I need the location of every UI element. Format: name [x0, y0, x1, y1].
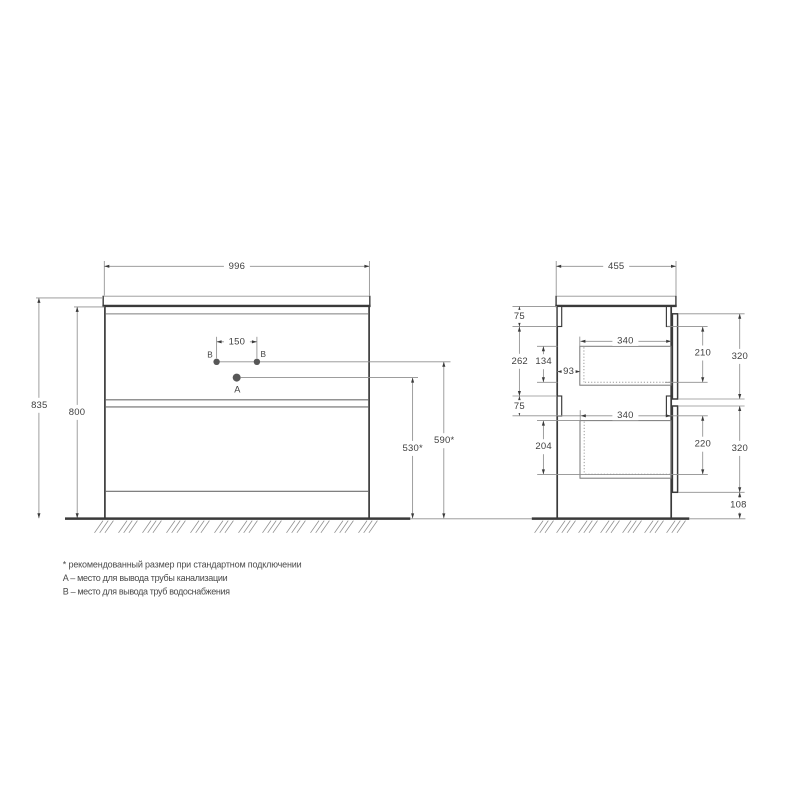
svg-text:262: 262: [511, 356, 527, 367]
svg-text:A: A: [234, 384, 241, 394]
svg-text:* рекомендованный размер при с: * рекомендованный размер при стандартном…: [63, 559, 302, 569]
svg-text:204: 204: [535, 441, 551, 452]
svg-text:B – место для вывода труб водо: B – место для вывода труб водоснабжения: [63, 587, 230, 597]
svg-text:320: 320: [732, 351, 748, 362]
svg-text:93: 93: [563, 366, 574, 377]
svg-text:996: 996: [229, 261, 245, 272]
svg-text:134: 134: [535, 356, 551, 367]
svg-text:150: 150: [229, 336, 245, 347]
svg-text:455: 455: [608, 261, 624, 272]
svg-text:75: 75: [514, 311, 525, 322]
svg-text:320: 320: [732, 443, 748, 454]
svg-text:75: 75: [514, 401, 525, 412]
svg-text:108: 108: [730, 500, 746, 511]
svg-text:800: 800: [69, 407, 85, 418]
svg-text:A – место для вывода трубы кан: A – место для вывода трубы канализации: [63, 573, 228, 583]
svg-text:210: 210: [695, 348, 711, 359]
svg-text:B: B: [207, 350, 213, 359]
svg-text:835: 835: [31, 400, 47, 411]
svg-text:B: B: [260, 350, 266, 359]
svg-text:530*: 530*: [403, 443, 423, 454]
svg-text:340: 340: [617, 336, 633, 347]
svg-text:340: 340: [617, 410, 633, 421]
svg-text:220: 220: [695, 439, 711, 450]
svg-text:590*: 590*: [434, 435, 454, 446]
